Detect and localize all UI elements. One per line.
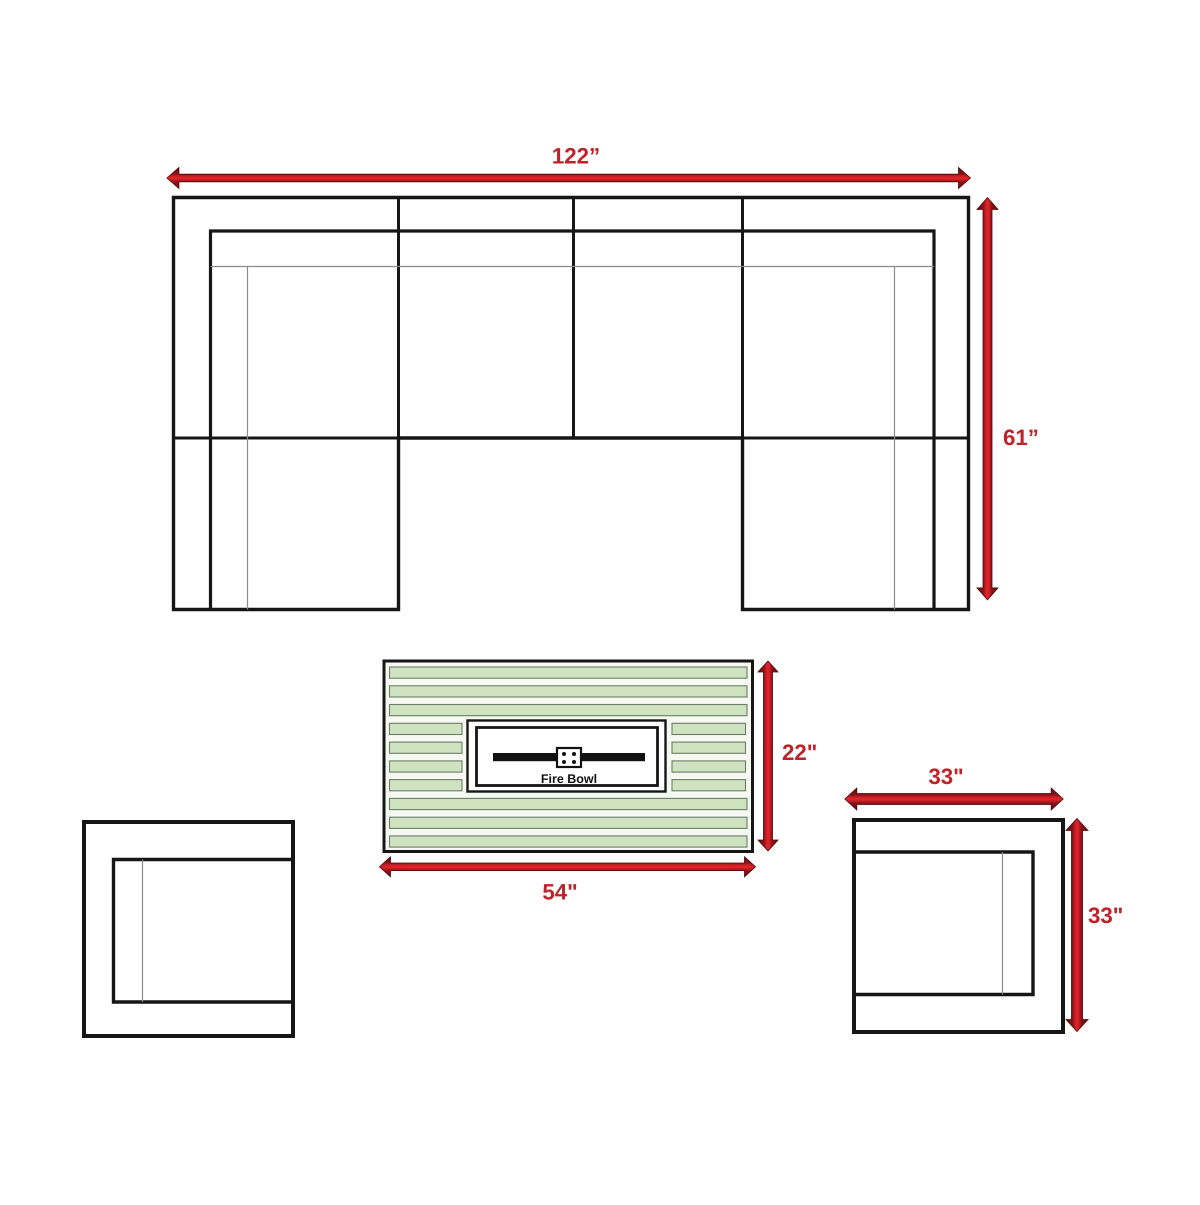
svg-text:Fire Bowl: Fire Bowl	[541, 772, 597, 786]
svg-text:54": 54"	[542, 880, 577, 905]
svg-text:122”: 122”	[552, 144, 600, 169]
svg-text:33": 33"	[928, 764, 963, 789]
svg-text:33": 33"	[1088, 903, 1123, 928]
svg-text:61”: 61”	[1003, 425, 1039, 450]
svg-text:22": 22"	[782, 740, 817, 765]
